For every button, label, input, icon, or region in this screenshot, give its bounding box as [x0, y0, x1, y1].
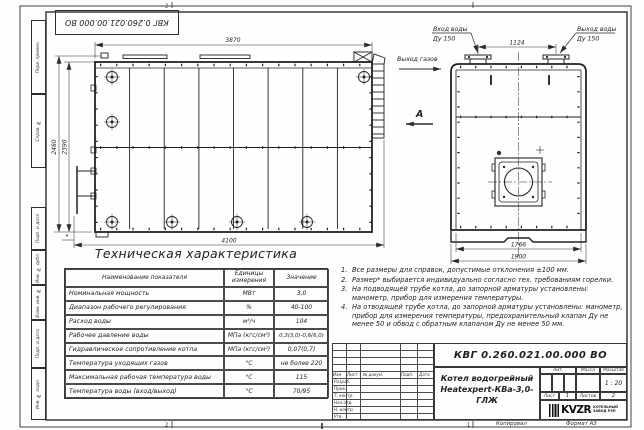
rotated-doc-number: КВГ 0.260.021.00.000 ВО: [65, 18, 169, 27]
scale-value: 1 : 20: [600, 374, 627, 392]
note-item: 3.На подводящей трубе котла, до запорной…: [341, 285, 625, 302]
dim-height-outer: 2480: [51, 139, 58, 154]
frame-strip-inv-dubl: Инв. № дубл.: [31, 250, 46, 285]
dim-height-body: 2390: [62, 139, 69, 154]
water-outlet-dn: Ду 150: [576, 36, 599, 43]
scale-label: Масштаб: [600, 367, 627, 374]
table-row: Температура воды (вход/выход): [65, 384, 224, 398]
frame-strip-inv-podl: Инв. № подл.: [31, 368, 46, 420]
water-inlet-flange: [465, 55, 491, 64]
product-name: Котел водогрейный Heatexpert-КВа-3,0-ГЛЖ: [434, 367, 540, 420]
notes-list: 1.Все размеры для справок, допустимые от…: [341, 266, 625, 330]
col-header-name: Наименование показателя: [65, 269, 224, 287]
lit-cell-3: [564, 374, 576, 392]
flue-collar: [354, 52, 372, 62]
row-tkontr: Т. контр.: [334, 393, 353, 398]
logo-text: KVZR: [561, 404, 591, 416]
water-inlet-label: Вход воды: [433, 26, 468, 33]
table-row: Температура уходящих газов: [65, 356, 224, 370]
water-outlet-flange: [543, 55, 569, 64]
sheet-value: 1: [559, 392, 576, 400]
dim-star: *: [66, 234, 69, 241]
logo-barcode-icon: [549, 404, 559, 417]
table-row: Рабочее давление воды: [65, 329, 224, 343]
mass-label: Масса: [576, 367, 600, 374]
footer-format: Формат А3: [566, 421, 597, 427]
col-data: Дата: [419, 372, 430, 377]
table-row: Максимальная рабочая температура воды: [65, 370, 224, 384]
dim-flange-span: 1124: [509, 40, 524, 47]
mass-cell: [576, 374, 600, 392]
company-logo-cell: KVZR КОТЕЛЬНЫЙ ЗАВОД РЭП: [540, 400, 627, 420]
frame-strip-sprav-no: Справ. №: [31, 94, 46, 168]
note-item: 2.Размер* выбирается индивидуально согла…: [341, 276, 625, 285]
zone-mark-top: 2: [165, 4, 168, 10]
dim-length-bottom: 4100: [221, 238, 236, 245]
side-brackets: [77, 85, 108, 237]
row-razrab: Разраб.: [334, 379, 350, 384]
rotated-doc-stamp: КВГ 0.260.021.00.000 ВО: [55, 10, 179, 35]
dim-rear-outer: 1900: [511, 254, 526, 261]
frame-strip-podp-data-1: Подп. и дата: [31, 207, 46, 250]
lit-cell-2: [552, 374, 564, 392]
dim-length-top: 3870: [225, 37, 240, 44]
row-nkontr: Н. контр.: [334, 407, 354, 412]
table-row: Номинальная мощность: [65, 287, 224, 301]
col-list: Лист: [347, 372, 357, 377]
zone-mark-bottom: 2: [165, 423, 168, 429]
col-ndokum: № докум.: [363, 372, 383, 377]
tech-table: Наименование показателя Единицы измерени…: [64, 268, 328, 399]
side-view-dimensions: [54, 42, 384, 248]
table-row: Диапазон рабочего регулирования: [65, 301, 224, 315]
water-inlet-dn: Ду 150: [432, 36, 455, 43]
frame-strip-perv-primen: Перв. примен.: [31, 20, 46, 94]
row-nachotd: Нач.отд.: [334, 400, 353, 405]
drawing-sheet: 2 2 1: [0, 0, 644, 430]
tech-table-title: Техническая характеристика: [64, 246, 328, 261]
gas-outlet-label: Выход газов: [397, 56, 438, 63]
col-izm: Изм: [333, 372, 341, 377]
row-prov: Пров.: [334, 386, 346, 391]
sheets-label: Листов: [576, 392, 600, 400]
lifting-lugs: [104, 69, 372, 230]
boiler-side-view: [77, 52, 385, 237]
frame-strip-podp-data-2: Подп. и дата: [31, 320, 46, 368]
sheets-value: 2: [600, 392, 627, 400]
col-header-value: Значение: [274, 269, 329, 287]
col-header-units: Единицы измерения: [224, 269, 274, 287]
frame-strip-vzam-inv: Взам. инв. №: [31, 285, 46, 320]
zone-mark-bottom-1: 1: [467, 423, 470, 429]
note-item: 4.На отводящей трубе котла, до запорной …: [341, 303, 625, 329]
dim-rear-inner: 1766: [511, 242, 526, 249]
footer-copied-by: Копировал: [496, 421, 527, 427]
col-podp: Подп.: [401, 372, 413, 377]
lit-label: Лит.: [540, 367, 576, 374]
boiler-rear-view: [451, 52, 586, 256]
flue-stub: [372, 54, 385, 138]
table-row: Расход воды: [65, 315, 224, 329]
table-row: Гидравлическое сопротивление котла: [65, 343, 224, 357]
water-outlet-label: Выход воды: [577, 26, 617, 33]
sheet-label: Лист: [540, 392, 559, 400]
tech-characteristics: Техническая характеристика Наименование …: [64, 246, 328, 399]
note-item: 1.Все размеры для справок, допустимые от…: [341, 266, 625, 275]
title-block: Изм Лист № докум. Подп. Дата Разраб. Про…: [332, 343, 627, 420]
doc-number: КВГ 0.260.021.00.000 ВО: [434, 343, 627, 367]
row-utv: Утв.: [334, 414, 343, 419]
lit-cell-1: [540, 374, 552, 392]
view-a-label: А: [415, 109, 423, 120]
logo-subtitle: КОТЕЛЬНЫЙ ЗАВОД РЭП: [593, 406, 618, 414]
